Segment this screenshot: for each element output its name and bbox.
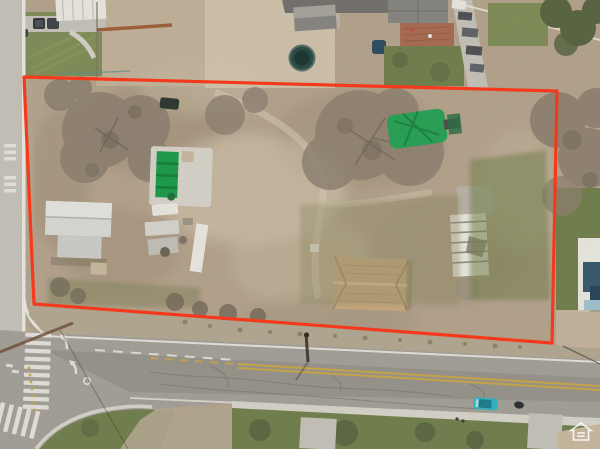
aerial-photo-canvas (0, 0, 600, 449)
aerial-photo (0, 0, 600, 449)
photo-grain (0, 0, 600, 449)
